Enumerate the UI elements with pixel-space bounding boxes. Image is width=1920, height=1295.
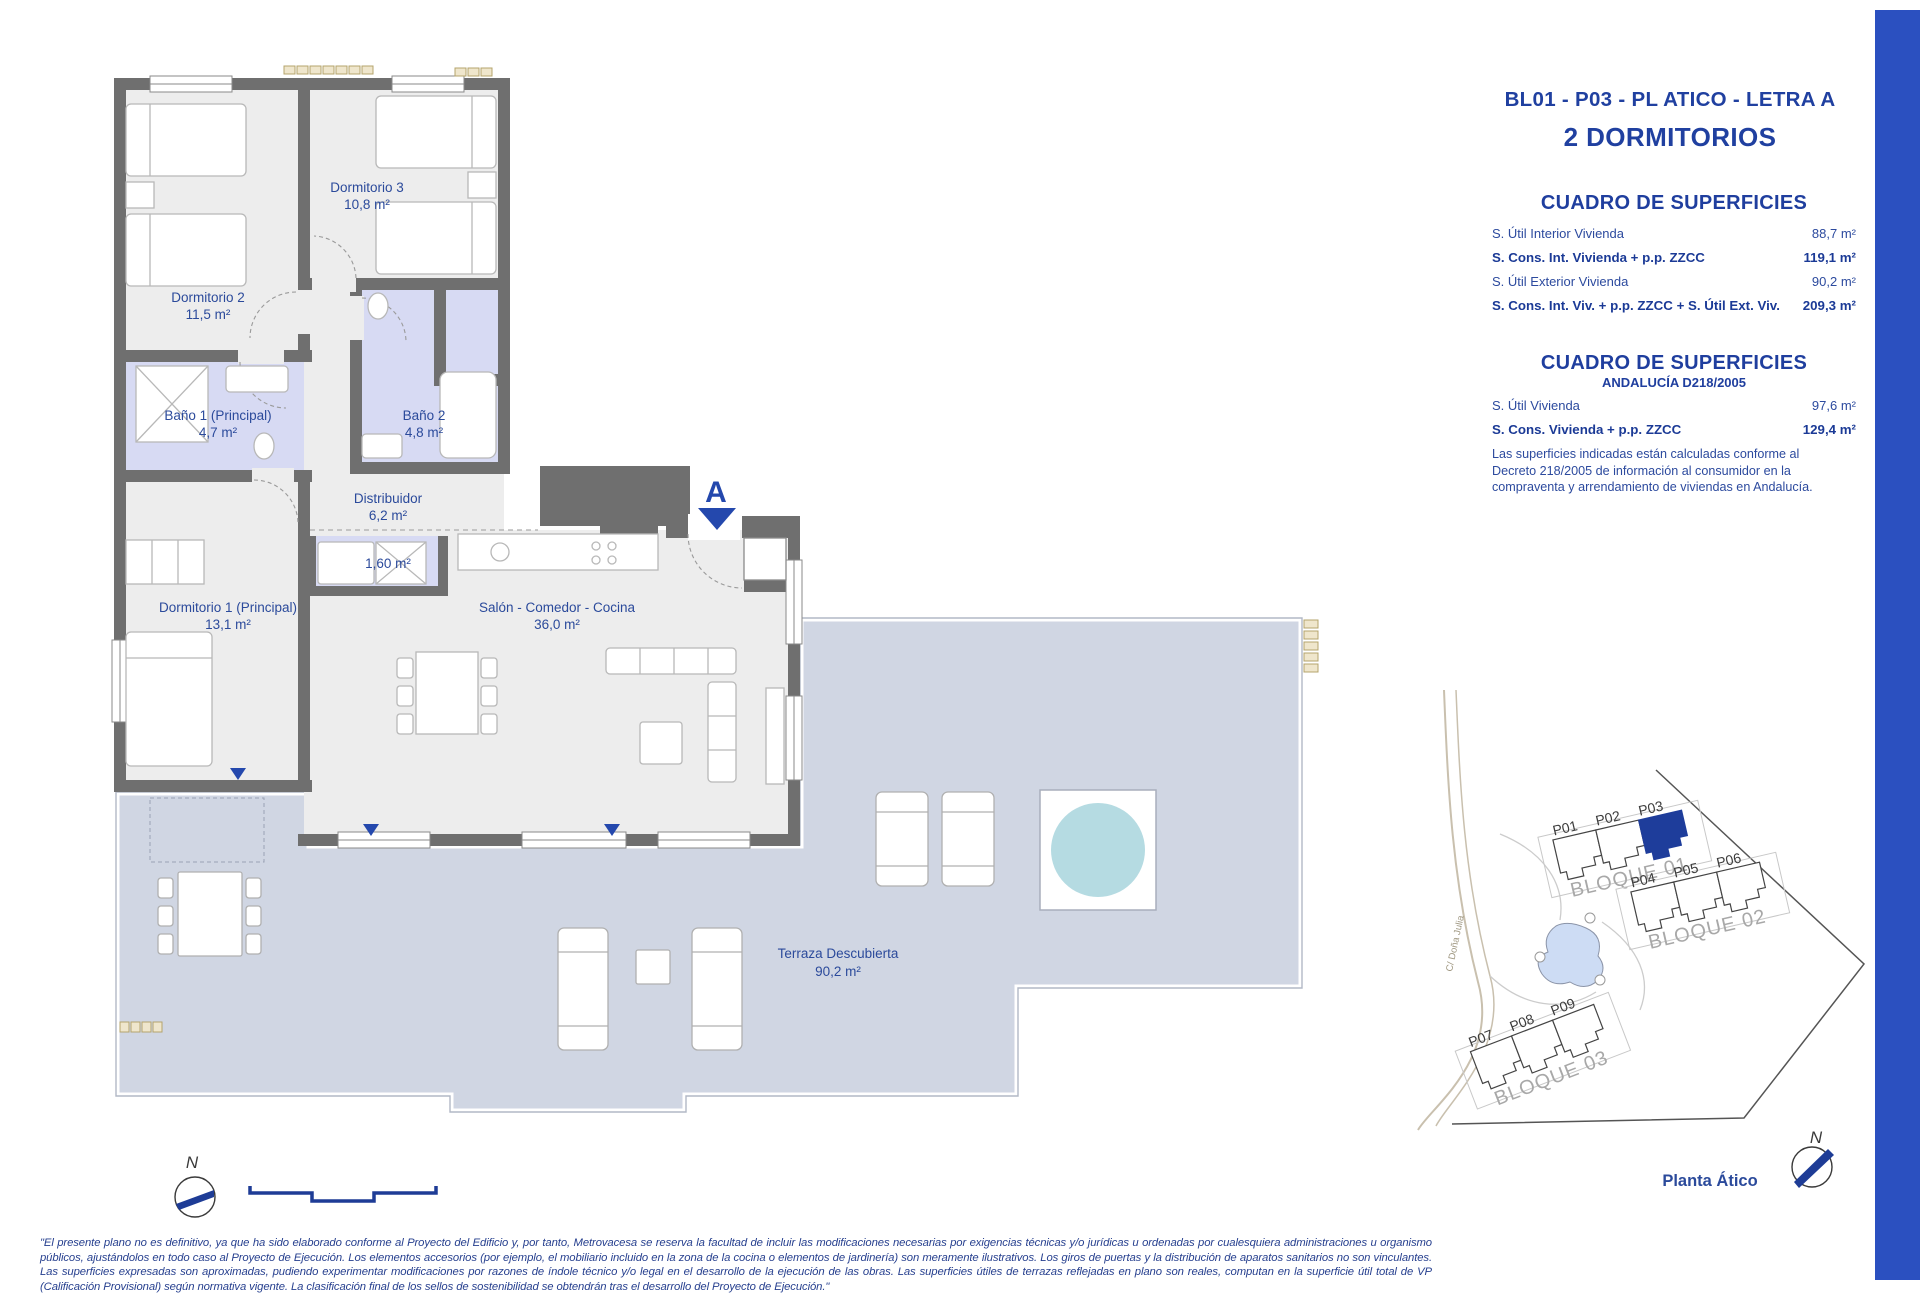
unit-code-title: BL01 - P03 - PL ATICO - LETRA A	[1470, 88, 1870, 112]
table-row: S. Útil Interior Vivienda88,7 m²	[1492, 226, 1856, 241]
table-row: S. Útil Vivienda97,6 m²	[1492, 398, 1856, 413]
room-label: Dormitorio 1 (Principal)	[159, 600, 297, 615]
svg-text:36,0 m²: 36,0 m²	[534, 617, 580, 632]
scale-bar	[250, 1186, 436, 1201]
svg-text:6,2 m²: 6,2 m²	[369, 508, 408, 523]
room-label: Dormitorio 3	[330, 180, 404, 195]
table-row: S. Útil Exterior Vivienda90,2 m²	[1492, 274, 1856, 289]
accent-side-bar	[1875, 10, 1920, 1280]
room-label: 1,60 m²	[365, 556, 411, 571]
svg-text:11,5 m²: 11,5 m²	[186, 307, 231, 322]
svg-text:4,8 m²: 4,8 m²	[405, 425, 444, 440]
svg-text:90,2 m²: 90,2 m²	[815, 964, 861, 979]
street-label: C/ Doña Julia	[1444, 914, 1467, 973]
svg-text:13,1 m²: 13,1 m²	[205, 617, 251, 632]
svg-text:4,7 m²: 4,7 m²	[199, 425, 238, 440]
site-plan: P01 P02 P03 BLOQUE 01 P04 P05 P06 BLOQUE…	[1418, 690, 1864, 1130]
room-label: Salón - Comedor - Cocina	[479, 600, 636, 615]
site-pool	[1538, 923, 1603, 986]
table1-title: CUADRO DE SUPERFICIES	[1492, 192, 1856, 215]
section-letter: A	[705, 476, 727, 509]
floor-caption: Planta Ático	[1640, 1172, 1780, 1191]
decree-note: Las superficies indicadas están calculad…	[1492, 446, 1822, 496]
table2-subtitle: ANDALUCÍA D218/2005	[1492, 375, 1856, 390]
table-row: S. Cons. Int. Viv. + p.p. ZZCC + S. Útil…	[1492, 298, 1856, 313]
room-label: Baño 2	[403, 408, 446, 423]
north-label: N	[186, 1153, 199, 1172]
table-row: S. Cons. Vivienda + p.p. ZZCC129,4 m²	[1492, 422, 1856, 437]
room-label: Baño 1 (Principal)	[164, 408, 271, 423]
compass-right: N	[1792, 1128, 1834, 1188]
svg-text:10,8 m²: 10,8 m²	[344, 197, 390, 212]
table-row: S. Cons. Int. Vivienda + p.p. ZZCC119,1 …	[1492, 250, 1856, 265]
north-needle-icon	[1794, 1149, 1834, 1188]
brochure-page: { "header": { "unit_code": "BL01 - P03 -…	[0, 0, 1920, 1280]
bedrooms-subtitle: 2 DORMITORIOS	[1470, 122, 1870, 153]
north-label: N	[1810, 1128, 1823, 1147]
north-needle-icon	[176, 1190, 214, 1210]
compass-left: N	[175, 1153, 215, 1217]
room-label: Distribuidor	[354, 491, 423, 506]
room-label: Terraza Descubierta	[778, 946, 899, 961]
room-label: Dormitorio 2	[171, 290, 245, 305]
legal-disclaimer: "El presente plano no es definitivo, ya …	[40, 1236, 1432, 1295]
table2-title: CUADRO DE SUPERFICIES	[1492, 352, 1856, 375]
pool	[1051, 803, 1145, 897]
